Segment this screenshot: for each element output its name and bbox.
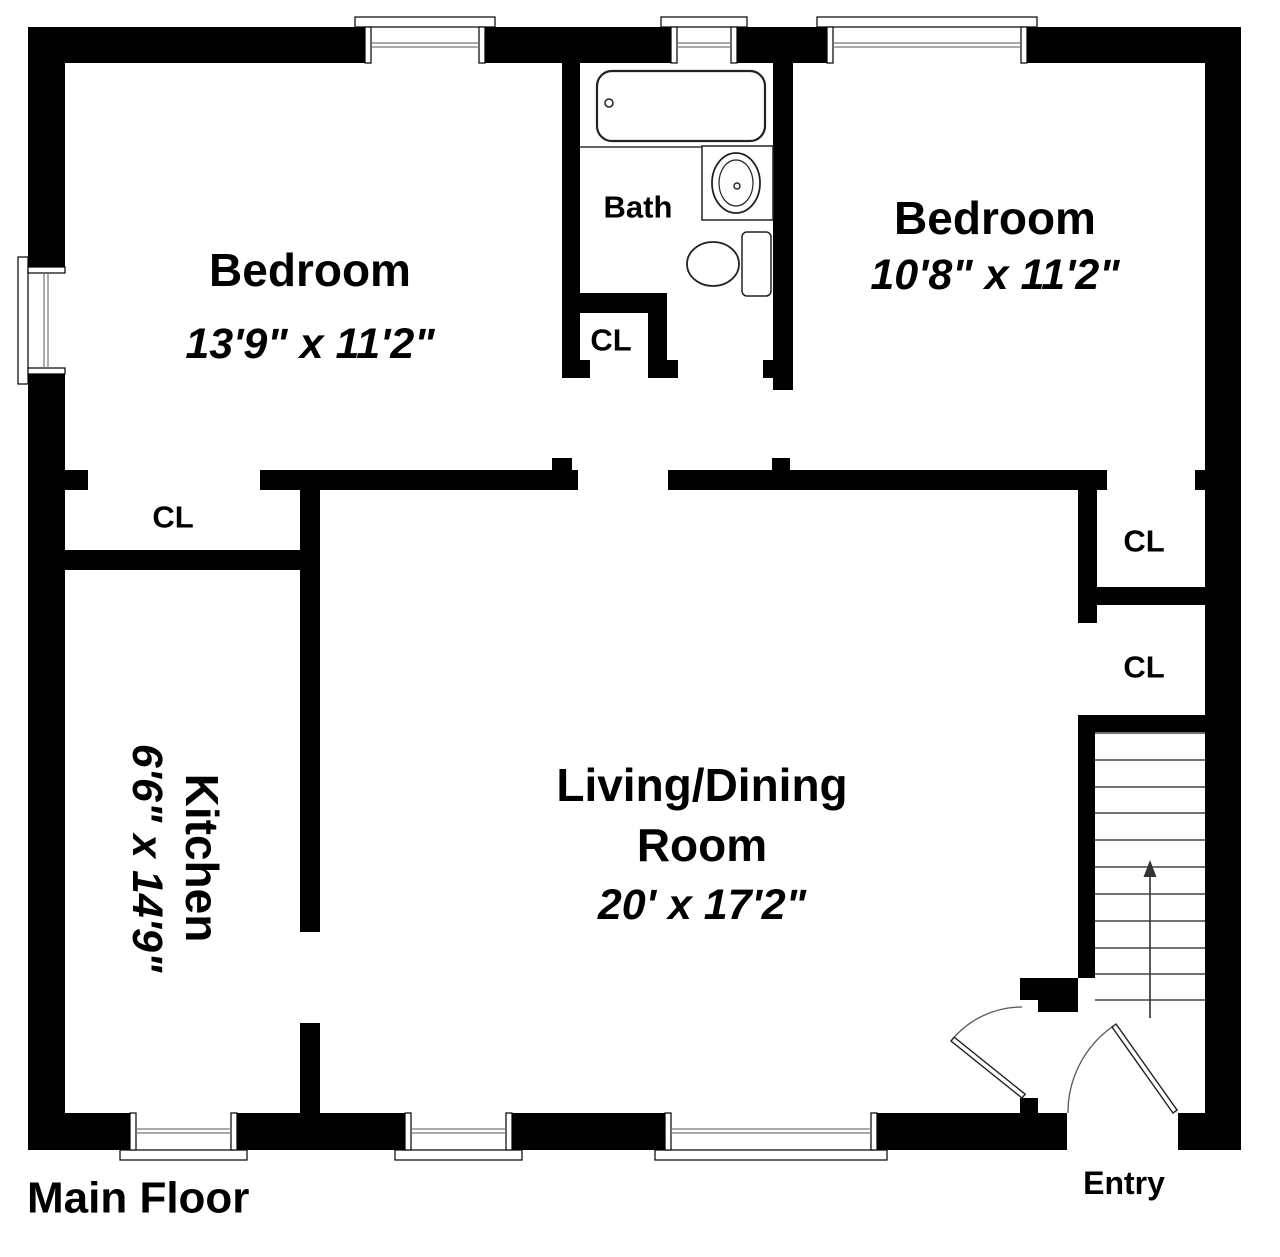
wall-kitchen-east-lower: [300, 1023, 320, 1113]
closet-label-bath: CL: [590, 323, 631, 358]
wall-bath-west-jamb: [562, 360, 590, 378]
kitchen-name: Kitchen: [176, 774, 228, 943]
closet-label-living: CL: [1123, 650, 1164, 685]
window-opening: [365, 27, 485, 63]
bedroom-left-dims: 13'9" x 11'2": [185, 320, 435, 368]
window-bath-top: [661, 17, 747, 63]
sink-faucet-icon: [734, 183, 740, 189]
bedroom-right-name: Bedroom: [894, 192, 1096, 244]
bedroom-left-name: Bedroom: [209, 244, 411, 296]
bath-name: Bath: [604, 190, 673, 225]
living-name-line2: Room: [637, 819, 767, 871]
wall-bath-east-jamb: [763, 360, 793, 378]
window-jamb: [405, 1113, 411, 1150]
window-jamb: [231, 1113, 237, 1150]
bathtub-icon: [597, 71, 765, 141]
window-opening: [130, 1113, 237, 1150]
window-jamb: [671, 27, 677, 63]
bedroom-right-dims: 10'8" x 11'2": [870, 251, 1120, 299]
plan-background: [0, 0, 1280, 1252]
window-living-bottom-1: [395, 1113, 522, 1160]
wall-vestibule-stub-notch: [1038, 1000, 1078, 1012]
floor-plan-canvas: Bedroom 13'9" x 11'2" Bath Bedroom 10'8"…: [0, 0, 1280, 1252]
window-jamb: [827, 27, 833, 63]
wall-bath-east: [773, 63, 793, 390]
window-jamb: [28, 267, 65, 273]
window-outer-frame: [120, 1150, 247, 1160]
window-jamb: [871, 1113, 877, 1150]
wall-middle-stub-right: [1195, 470, 1205, 490]
floor-plan: Bedroom 13'9" x 11'2" Bath Bedroom 10'8"…: [0, 0, 1280, 1252]
entry-label: Entry: [1083, 1165, 1165, 1201]
window-opening: [28, 267, 65, 374]
window-opening: [665, 1113, 877, 1150]
window-outer-frame: [817, 17, 1037, 27]
window-living-bottom-2: [655, 1113, 887, 1160]
plan-title: Main Floor: [27, 1174, 249, 1223]
closet-label-bedroom-left: CL: [152, 500, 193, 535]
wall-exterior-right: [1205, 27, 1241, 1150]
wall-right-closet-west: [1078, 488, 1097, 623]
window-opening: [827, 27, 1027, 63]
window-kitchen-bottom: [120, 1113, 247, 1160]
living-name-line1: Living/Dining: [556, 759, 847, 811]
wall-exterior-top: [28, 27, 1241, 63]
wall-hall-jamb-east: [772, 458, 790, 470]
wall-middle-segment-2: [668, 470, 1107, 490]
window-outer-frame: [661, 17, 747, 27]
window-outer-frame: [18, 257, 28, 384]
window-jamb: [731, 27, 737, 63]
window-outer-frame: [355, 17, 495, 27]
window-jamb: [665, 1113, 671, 1150]
toilet-tank-icon: [742, 232, 771, 296]
window-bedroom-left-side: [18, 257, 65, 384]
wall-exterior-bottom-right: [1178, 1113, 1241, 1150]
wall-left-closet-bottom: [65, 550, 300, 570]
wall-right-closet-bottom: [1097, 587, 1205, 605]
wall-bath-closet-top: [580, 293, 667, 313]
wall-kitchen-east-upper: [300, 470, 320, 932]
wall-stair-top: [1078, 715, 1205, 732]
window-jamb: [506, 1113, 512, 1150]
wall-hall-jamb-west: [552, 458, 572, 470]
window-jamb: [365, 27, 371, 63]
window-bedroom-left-top: [355, 17, 495, 63]
window-outer-frame: [655, 1150, 887, 1160]
window-outer-frame: [395, 1150, 522, 1160]
window-opening: [405, 1113, 512, 1150]
living-dims: 20' x 17'2": [597, 881, 807, 929]
window-bedroom-right-top: [817, 17, 1037, 63]
closet-label-bedroom-right: CL: [1123, 524, 1164, 559]
wall-stair-west: [1078, 732, 1095, 978]
toilet-bowl-icon: [687, 242, 739, 286]
window-jamb: [479, 27, 485, 63]
wall-bath-west: [562, 63, 580, 378]
kitchen-dims: 6'6" x 14'9": [123, 744, 171, 973]
window-jamb: [130, 1113, 136, 1150]
window-opening: [671, 27, 737, 63]
wall-vestibule-stub: [1020, 978, 1078, 1000]
wall-entry-door-jamb: [1020, 1098, 1038, 1113]
wall-bath-closet-east: [648, 313, 667, 360]
wall-exterior-left: [28, 27, 65, 1150]
wall-bath-closet-jamb: [648, 360, 678, 378]
window-jamb: [1021, 27, 1027, 63]
window-jamb: [28, 368, 65, 374]
wall-middle-stub-left: [65, 470, 88, 490]
